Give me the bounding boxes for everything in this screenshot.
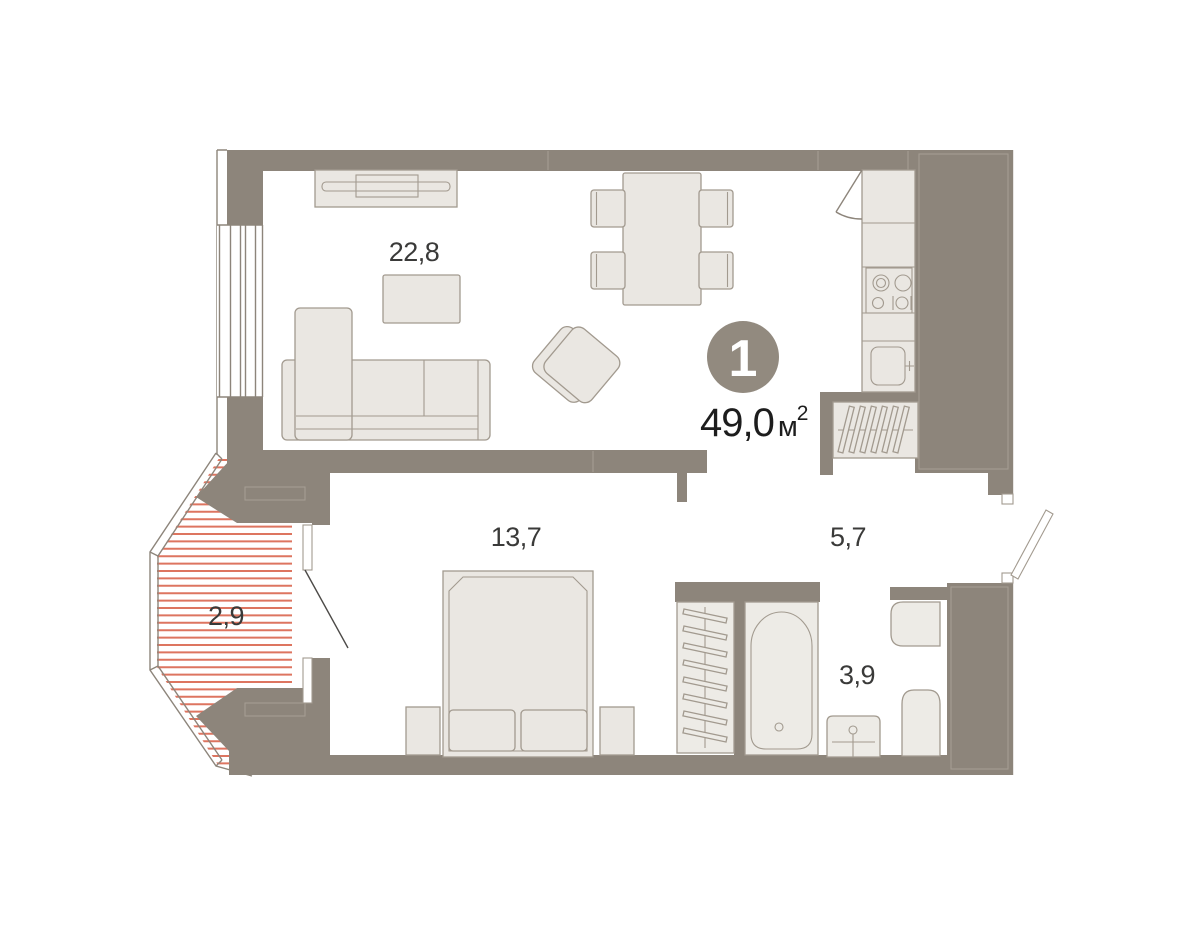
- entry-door-hinge: [1002, 494, 1013, 504]
- dining-chair: [591, 190, 625, 227]
- living-room-window: [217, 225, 263, 397]
- bathtub: [745, 602, 818, 755]
- balcony-area-label: 2,9: [208, 601, 244, 631]
- wall-closet-right: [734, 582, 745, 773]
- floor-plan: 1 49,0м2 22,8 13,7 5,7: [0, 0, 1200, 925]
- tv-console: [315, 170, 457, 207]
- nightstand-right: [600, 707, 634, 755]
- wall-bedroom-door-stub: [677, 473, 687, 502]
- washing-machine: [891, 602, 940, 646]
- bathroom-area-label: 3,9: [839, 660, 875, 690]
- bed: [443, 571, 593, 757]
- wall-shaft-upper-stub: [988, 473, 1012, 495]
- dining-chair: [699, 252, 733, 289]
- wall-top: [227, 150, 1012, 171]
- wall-bathroom-top-left: [675, 582, 820, 602]
- nightstand-left: [406, 707, 440, 755]
- dining-chair: [699, 190, 733, 227]
- bedroom-area-label: 13,7: [491, 522, 542, 552]
- wall-left-upper: [227, 150, 263, 225]
- room-count-number: 1: [729, 330, 758, 388]
- bathroom-sink: [827, 716, 880, 757]
- wall-kitchen-closet-top: [820, 392, 918, 402]
- balcony-door-jamb: [303, 525, 312, 570]
- pillow: [521, 710, 587, 751]
- dining-table: [623, 173, 701, 305]
- pillow: [449, 710, 515, 751]
- hallway-closet: [833, 402, 918, 458]
- dining-chair: [591, 252, 625, 289]
- wall-shaft-upper: [915, 150, 1012, 473]
- toilet: [902, 690, 940, 756]
- balcony-door-jamb: [303, 658, 312, 703]
- wall-bathroom-top-right: [890, 587, 947, 600]
- coffee-table: [383, 275, 460, 323]
- wall-kitchen-stub: [820, 392, 833, 475]
- wall-bottom: [250, 755, 1012, 775]
- bathroom-wardrobe: [677, 602, 734, 753]
- wall-shaft-lower: [947, 583, 1012, 773]
- hallway-area-label: 5,7: [830, 522, 866, 552]
- living-area-label: 22,8: [389, 237, 440, 267]
